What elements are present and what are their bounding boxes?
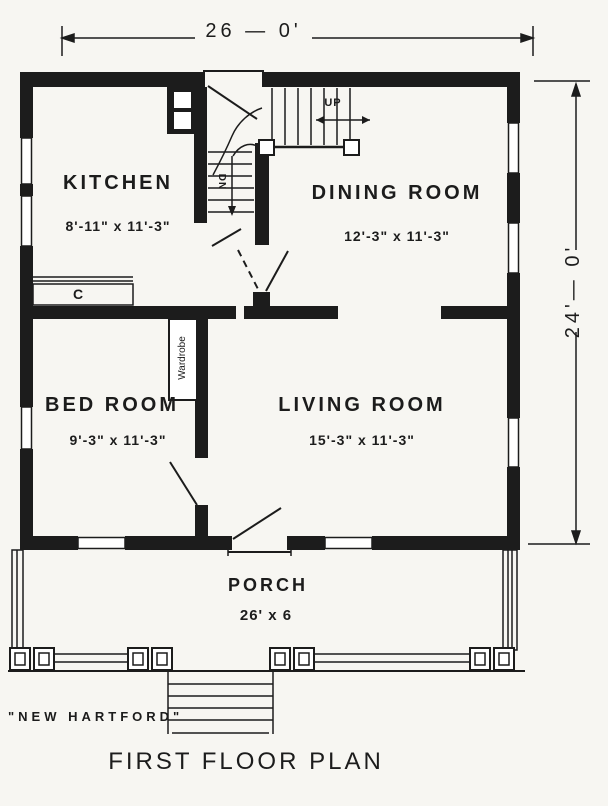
wall-middle-pier <box>253 292 270 319</box>
wardrobe-label: Wardrobe <box>178 308 188 408</box>
window-kitchen-left-2 <box>22 196 32 246</box>
window-dining-right-1 <box>509 123 519 173</box>
dimension-arrowhead <box>62 34 74 42</box>
room-label-porch: PORCH <box>198 576 338 594</box>
dimension-arrowhead <box>572 84 580 96</box>
newel-post <box>344 140 359 155</box>
kitchen-door-swing <box>212 229 241 246</box>
porch-post-inner <box>499 653 509 665</box>
wall-middle-left-segment <box>20 306 236 319</box>
room-label-kitchen: KITCHEN <box>38 173 198 193</box>
porch-post-inner <box>475 653 485 665</box>
room-size-dining: 12'-3" x 11'-3" <box>317 229 477 243</box>
wall-bedroom-door-pier <box>195 505 208 537</box>
porch-posts <box>10 648 514 670</box>
newel-post <box>259 140 274 155</box>
stair-treads-down <box>208 152 254 212</box>
window-dining-right-2 <box>509 223 519 273</box>
wall-left-segment <box>20 72 33 138</box>
wall-front-segment <box>372 536 520 550</box>
wall-right-segment <box>507 72 520 123</box>
dimension-arrowhead <box>572 531 580 543</box>
entry-steps <box>168 671 273 734</box>
room-size-kitchen: 8'-11" x 11'-3" <box>38 219 198 233</box>
wall-left-segment <box>20 246 33 407</box>
porch-post-inner <box>157 653 167 665</box>
room-label-dining: DINING ROOM <box>297 183 497 203</box>
wall-dining-living-segment <box>441 306 520 319</box>
wall-stair-dining-stub <box>255 143 269 245</box>
porch-post-inner <box>39 653 49 665</box>
dimension-arrowhead <box>521 34 533 42</box>
stair-down-label: DN <box>216 160 226 204</box>
window-bedroom-left <box>22 407 32 449</box>
wall-right-segment <box>507 273 520 418</box>
wall-top-left-segment <box>20 72 205 87</box>
stair-up-label: UP <box>318 98 348 109</box>
plan-name: "NEW HARTFORD" <box>8 710 198 723</box>
room-size-living: 15'-3" x 11'-3" <box>282 433 442 447</box>
chimney-flue <box>174 92 191 108</box>
wall-top-right-segment <box>262 72 520 87</box>
wall-left-segment <box>20 184 33 196</box>
wall-front-segment <box>125 536 232 550</box>
porch-rail-right <box>503 550 517 650</box>
chimney-flue <box>174 112 191 129</box>
room-size-porch: 26' x 6 <box>196 608 336 623</box>
room-label-bedroom: BED ROOM <box>32 395 192 415</box>
dining-door-swing <box>266 251 288 291</box>
overall-width-dimension: 26 — 0' <box>195 21 312 41</box>
wall-front-segment <box>20 536 78 550</box>
porch-post-inner <box>15 653 25 665</box>
fixtures <box>33 277 197 400</box>
page-title: FIRST FLOOR PLAN <box>96 750 396 774</box>
window-kitchen-left-1 <box>22 138 32 184</box>
chimney <box>167 87 200 134</box>
bedroom-door-swing <box>170 462 197 505</box>
porch-post-inner <box>299 653 309 665</box>
entry-step-treads <box>168 684 273 733</box>
front-door-swing <box>233 508 281 539</box>
back-door-swing <box>208 86 257 119</box>
counter-label: C <box>68 287 88 301</box>
window-living-front <box>325 538 372 549</box>
down-arrow-icon <box>228 156 236 216</box>
room-size-bedroom: 9'-3" x 11'-3" <box>38 433 198 447</box>
window-bedroom-front <box>78 538 125 549</box>
wall-front-segment <box>287 536 325 550</box>
floor-plan-sheet: 26 — 0' 24'— 0' KITCHEN 8'-11" x 11'-3" … <box>0 0 608 806</box>
cellar-door-swing-dashed <box>238 250 259 291</box>
overall-depth-dimension: 24'— 0' <box>563 221 583 361</box>
porch-post-inner <box>133 653 143 665</box>
porch-post-inner <box>275 653 285 665</box>
window-living-right <box>509 418 519 467</box>
room-label-living: LIVING ROOM <box>262 395 462 415</box>
wall-left-segment <box>20 449 33 550</box>
wall-right-segment <box>507 173 520 223</box>
cellar-stair <box>208 152 254 212</box>
